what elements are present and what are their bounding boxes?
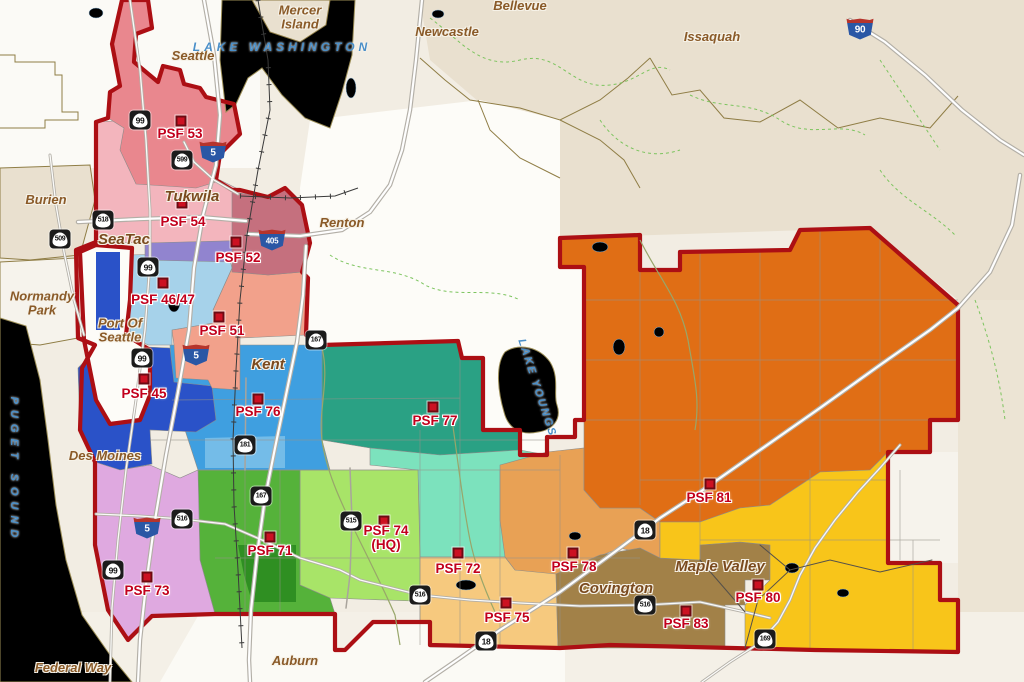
station-marker-psf-83: [681, 606, 692, 617]
label-text-line: Burien: [25, 193, 66, 207]
label-text-line: PSF 46/47: [131, 293, 195, 307]
station-label-psf-74-hq: PSF 74(HQ): [363, 524, 408, 552]
interstate-5-shield-icon: 5: [134, 516, 161, 539]
station-marker-psf-45: [139, 374, 150, 385]
label-text-line: PSF 83: [663, 617, 708, 631]
station-label-psf-71: PSF 71: [247, 544, 292, 558]
state-route-oval: 509: [53, 232, 68, 246]
fire-district-map[interactable]: PSF 53PSF 54PSF 52PSF 46/47PSF 51PSF 45P…: [0, 0, 1024, 682]
label-text-line: PSF 53: [157, 127, 202, 141]
state-route-167-shield-icon: 167: [251, 487, 272, 506]
route-number: 99: [109, 565, 118, 575]
label-text-line: PSF 54: [160, 215, 205, 229]
station-marker-psf-81: [705, 479, 716, 490]
station-label-psf-46-47: PSF 46/47: [131, 293, 195, 307]
state-route-509-shield-icon: 509: [50, 230, 71, 249]
route-number: 167: [256, 493, 266, 500]
label-text-line: Mercer: [279, 4, 322, 18]
state-route-99-shield-icon: 99: [130, 111, 151, 130]
station-label-psf-78: PSF 78: [551, 560, 596, 574]
station-label-psf-53: PSF 53: [157, 127, 202, 141]
city-label-bellevue: Bellevue: [493, 0, 546, 13]
station-label-psf-51: PSF 51: [199, 324, 244, 338]
interstate-5-shield-icon: 5: [200, 140, 227, 163]
station-label-psf-77: PSF 77: [412, 414, 457, 428]
station-label-psf-83: PSF 83: [663, 617, 708, 631]
label-text-line: Issaquah: [684, 30, 740, 44]
city-label-burien: Burien: [25, 193, 66, 207]
state-route-515-shield-icon: 515: [341, 512, 362, 531]
station-label-psf-54: PSF 54: [160, 215, 205, 229]
station-marker-psf-51: [214, 312, 225, 323]
city-label-issaquah: Issaquah: [684, 30, 740, 44]
city-label-renton: Renton: [320, 216, 365, 230]
state-route-oval: 518: [96, 213, 111, 227]
route-number: 599: [177, 157, 187, 164]
label-text-line: PSF 80: [735, 591, 780, 605]
state-route-oval: 516: [175, 512, 190, 526]
state-route-oval: 99: [106, 563, 121, 577]
state-route-169-shield-icon: 169: [755, 630, 776, 649]
label-text-line: PSF 77: [412, 414, 457, 428]
station-label-psf-80: PSF 80: [735, 591, 780, 605]
route-number: 516: [415, 592, 425, 599]
route-number: 18: [641, 525, 650, 535]
label-text-line: Tukwila: [165, 189, 220, 206]
route-number: 169: [760, 636, 770, 643]
state-route-99-shield-icon: 99: [132, 349, 153, 368]
state-route-oval: 516: [638, 598, 653, 612]
route-number: 515: [346, 518, 356, 525]
route-number: 5: [193, 351, 198, 362]
state-route-oval: 18: [638, 523, 653, 537]
interstate-90-shield-icon: 90: [847, 17, 874, 40]
city-label-mercer-island: MercerIsland: [279, 4, 322, 33]
state-route-oval: 515: [344, 514, 359, 528]
label-text-line: Kent: [251, 357, 284, 374]
label-text-line: Renton: [320, 216, 365, 230]
label-text-line: PSF 75: [484, 611, 529, 625]
route-number: 99: [136, 115, 145, 125]
route-number: 405: [266, 237, 278, 246]
water-label-puget-sound: PUGET SOUND: [8, 397, 20, 544]
route-number: 99: [138, 353, 147, 363]
state-route-oval: 169: [758, 632, 773, 646]
state-route-181-shield-icon: 181: [235, 436, 256, 455]
state-route-oval: 99: [135, 351, 150, 365]
label-text-line: PSF 52: [215, 251, 260, 265]
station-marker-psf-78: [568, 548, 579, 559]
label-text-line: PSF 81: [686, 491, 731, 505]
state-route-516-shield-icon: 516: [172, 510, 193, 529]
station-label-psf-75: PSF 75: [484, 611, 529, 625]
station-marker-psf-53: [176, 116, 187, 127]
station-marker-psf-46-47: [158, 278, 169, 289]
station-marker-psf-80: [753, 580, 764, 591]
state-route-oval: 18: [479, 634, 494, 648]
station-marker-psf-71: [265, 532, 276, 543]
label-text-line: PSF 71: [247, 544, 292, 558]
label-text-line: Newcastle: [415, 25, 479, 39]
state-route-167-shield-icon: 167: [306, 331, 327, 350]
station-marker-psf-76: [253, 394, 264, 405]
label-text-line: Park: [10, 304, 74, 318]
label-text-line: Island: [279, 18, 322, 32]
state-route-99-shield-icon: 99: [103, 561, 124, 580]
city-label-normandy-park: NormandyPark: [10, 290, 74, 319]
label-text-line: SeaTac: [98, 232, 150, 249]
label-text-line: Normandy: [10, 290, 74, 304]
city-label-maple-valley: Maple Valley: [675, 559, 765, 576]
label-text-line: PSF 78: [551, 560, 596, 574]
city-label-tukwila: Tukwila: [165, 189, 220, 206]
state-route-99-shield-icon: 99: [138, 258, 159, 277]
route-number: 167: [311, 337, 321, 344]
route-number: 516: [640, 602, 650, 609]
state-route-oval: 181: [238, 438, 253, 452]
label-text-line: Port Of: [98, 317, 142, 331]
label-text-line: Des Moines: [69, 449, 141, 463]
station-label-psf-72: PSF 72: [435, 562, 480, 576]
city-label-federal-way: Federal Way: [35, 661, 111, 675]
station-label-psf-73: PSF 73: [124, 584, 169, 598]
city-label-des-moines: Des Moines: [69, 449, 141, 463]
state-route-oval: 167: [309, 333, 324, 347]
route-number: 516: [177, 516, 187, 523]
station-marker-psf-73: [142, 572, 153, 583]
route-number: 99: [144, 262, 153, 272]
route-number: 5: [144, 524, 149, 535]
state-route-oval: 167: [254, 489, 269, 503]
label-text-line: PSF 76: [235, 405, 280, 419]
label-text-line: PSF 73: [124, 584, 169, 598]
label-text-line: PSF 45: [121, 387, 166, 401]
interstate-5-shield-icon: 5: [183, 343, 210, 366]
route-number: 518: [98, 217, 108, 224]
station-marker-psf-72: [453, 548, 464, 559]
station-label-psf-76: PSF 76: [235, 405, 280, 419]
city-label-auburn: Auburn: [272, 654, 318, 668]
label-text-line: PSF 51: [199, 324, 244, 338]
station-label-psf-52: PSF 52: [215, 251, 260, 265]
label-text-line: PSF 72: [435, 562, 480, 576]
interstate-405-shield-icon: 405: [259, 228, 286, 251]
water-label-lake-washington: LAKE WASHINGTON: [193, 40, 371, 54]
label-text-line: Bellevue: [493, 0, 546, 13]
route-number: 90: [855, 25, 866, 36]
state-route-oval: 599: [175, 153, 190, 167]
map-label-layer: PSF 53PSF 54PSF 52PSF 46/47PSF 51PSF 45P…: [0, 0, 1024, 682]
state-route-518-shield-icon: 518: [93, 211, 114, 230]
state-route-516-shield-icon: 516: [410, 586, 431, 605]
route-number: 5: [210, 148, 215, 159]
route-number: 18: [482, 636, 491, 646]
state-route-599-shield-icon: 599: [172, 151, 193, 170]
state-route-18-shield-icon: 18: [635, 521, 656, 540]
label-text-line: PSF 74: [363, 524, 408, 538]
city-label-port-of-seattle: Port OfSeattle: [98, 317, 142, 346]
state-route-oval: 99: [133, 113, 148, 127]
label-text-line: Seattle: [98, 331, 142, 345]
state-route-18-shield-icon: 18: [476, 632, 497, 651]
station-marker-psf-52: [231, 237, 242, 248]
city-label-newcastle: Newcastle: [415, 25, 479, 39]
label-text-line: Maple Valley: [675, 559, 765, 576]
station-label-psf-45: PSF 45: [121, 387, 166, 401]
route-number: 509: [55, 236, 65, 243]
city-label-seatac: SeaTac: [98, 232, 150, 249]
station-marker-psf-75: [501, 598, 512, 609]
label-text-line: Federal Way: [35, 661, 111, 675]
station-label-psf-81: PSF 81: [686, 491, 731, 505]
station-marker-psf-77: [428, 402, 439, 413]
label-text-line: (HQ): [363, 538, 408, 552]
route-number: 181: [240, 442, 250, 449]
state-route-oval: 99: [141, 260, 156, 274]
water-label-lake-youngs: LAKE YOUNGS: [515, 337, 558, 438]
city-label-kent: Kent: [251, 357, 284, 374]
label-text-line: Auburn: [272, 654, 318, 668]
state-route-516-shield-icon: 516: [635, 596, 656, 615]
state-route-oval: 516: [413, 588, 428, 602]
